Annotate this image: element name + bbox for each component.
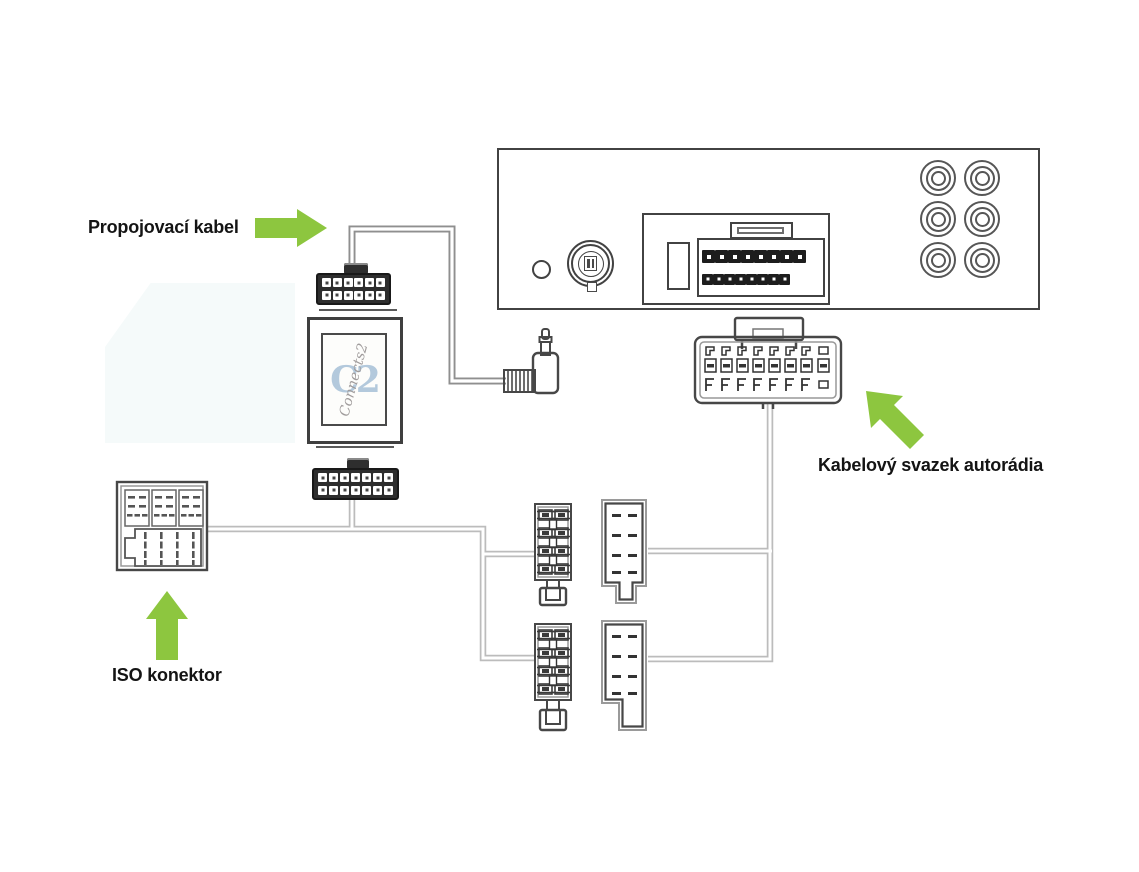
arrow-up-left-icon	[866, 391, 924, 449]
arrow-up-icon	[146, 591, 188, 660]
label-interconnect-cable: Propojovací kabel	[88, 217, 239, 238]
wiring-diagram: C2 Connects2	[0, 0, 1139, 872]
label-radio-harness: Kabelový svazek autorádia	[818, 455, 1043, 476]
arrow-right-icon	[255, 209, 327, 247]
arrows-layer	[0, 0, 1139, 872]
label-iso-connector: ISO konektor	[112, 665, 222, 686]
